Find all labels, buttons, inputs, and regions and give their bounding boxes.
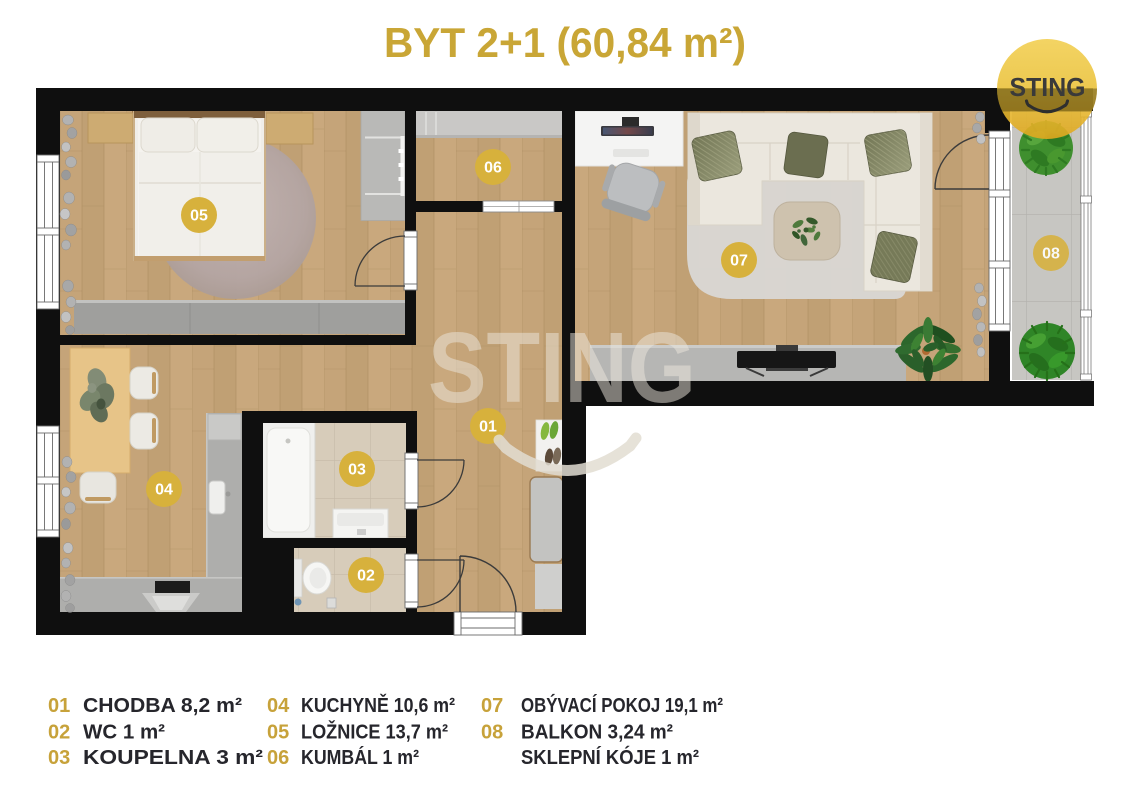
svg-text:CHODBA 8,2 m²: CHODBA 8,2 m² <box>83 695 242 717</box>
svg-text:STING: STING <box>1010 72 1086 102</box>
svg-text:KUMBÁL 1 m²: KUMBÁL 1 m² <box>301 746 419 769</box>
svg-text:WC 1 m²: WC 1 m² <box>83 722 165 744</box>
svg-text:02: 02 <box>357 568 375 585</box>
svg-text:05: 05 <box>267 722 289 744</box>
svg-text:SKLEPNÍ KÓJE 1 m²: SKLEPNÍ KÓJE 1 m² <box>521 745 699 769</box>
svg-text:03: 03 <box>348 462 366 479</box>
svg-text:08: 08 <box>481 722 503 744</box>
svg-text:LOŽNICE 13,7 m²: LOŽNICE 13,7 m² <box>301 720 448 744</box>
svg-text:OBÝVACÍ POKOJ 19,1 m²: OBÝVACÍ POKOJ 19,1 m² <box>521 693 723 717</box>
svg-text:01: 01 <box>48 695 70 717</box>
svg-text:06: 06 <box>484 160 502 177</box>
svg-text:KUCHYNĚ 10,6 m²: KUCHYNĚ 10,6 m² <box>301 693 455 717</box>
svg-text:STING: STING <box>428 312 696 424</box>
svg-text:03: 03 <box>48 747 70 769</box>
svg-text:06: 06 <box>267 747 289 769</box>
svg-text:02: 02 <box>48 722 70 744</box>
svg-text:08: 08 <box>1042 246 1060 263</box>
svg-text:07: 07 <box>481 695 503 717</box>
svg-text:04: 04 <box>267 695 290 717</box>
svg-text:BYT 2+1 (60,84 m²): BYT 2+1 (60,84 m²) <box>384 19 746 66</box>
svg-text:05: 05 <box>190 208 208 225</box>
svg-text:BALKON 3,24 m²: BALKON 3,24 m² <box>521 722 673 744</box>
svg-text:04: 04 <box>155 482 173 499</box>
svg-text:07: 07 <box>730 253 748 270</box>
svg-text:KOUPELNA 3 m²: KOUPELNA 3 m² <box>83 747 263 769</box>
